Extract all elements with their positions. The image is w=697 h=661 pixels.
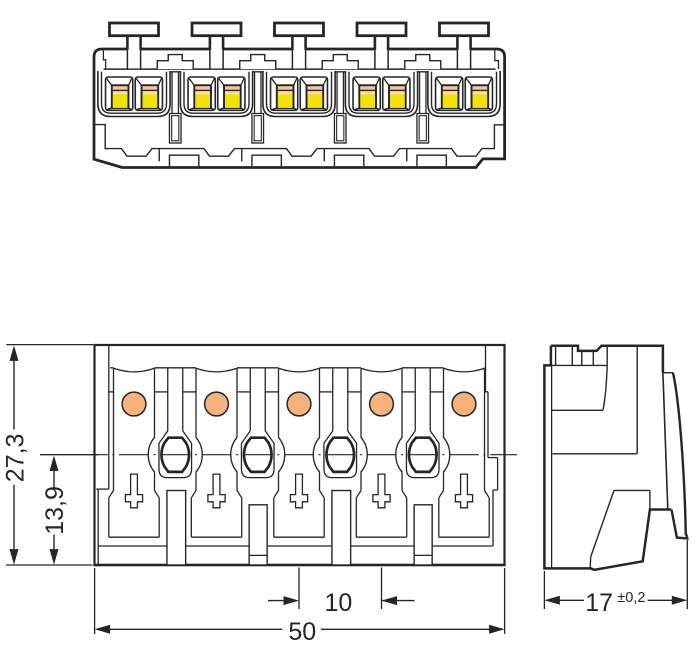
svg-text:27,3: 27,3 xyxy=(2,434,30,483)
svg-text:13,9: 13,9 xyxy=(41,486,69,535)
svg-text:50: 50 xyxy=(288,618,316,646)
svg-text:±0,2: ±0,2 xyxy=(617,590,645,606)
svg-text:10: 10 xyxy=(325,589,353,617)
svg-text:17: 17 xyxy=(585,589,613,617)
